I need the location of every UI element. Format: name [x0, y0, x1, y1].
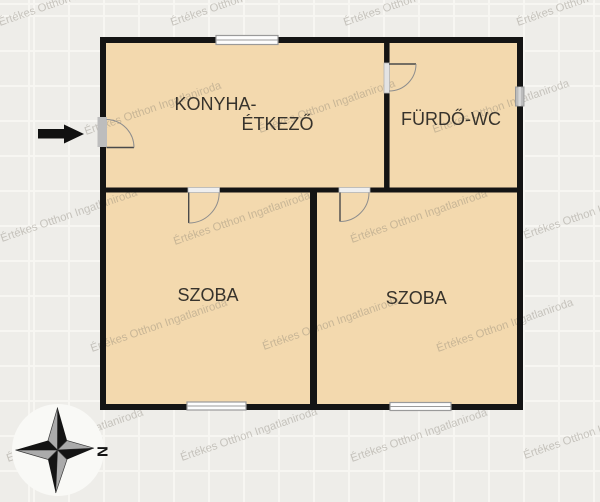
svg-text:Értékes Otthon Ingatlaniroda: Értékes Otthon Ingatlaniroda: [349, 405, 490, 464]
svg-text:SZOBA: SZOBA: [177, 285, 238, 305]
svg-text:Értékes Otthon Ingatlaniroda: Értékes Otthon Ingatlaniroda: [522, 402, 600, 461]
svg-text:Értékes Otthon Ingatlaniroda: Értékes Otthon Ingatlaniroda: [0, 0, 138, 29]
svg-text:KONYHA-: KONYHA-: [174, 94, 256, 114]
svg-text:N: N: [94, 446, 111, 457]
svg-text:Értékes Otthon Ingatlaniroda: Értékes Otthon Ingatlaniroda: [515, 0, 600, 29]
svg-text:SZOBA: SZOBA: [386, 288, 447, 308]
svg-text:Értékes Otthon Ingatlaniroda: Értékes Otthon Ingatlaniroda: [169, 0, 310, 29]
svg-text:FÜRDŐ-WC: FÜRDŐ-WC: [401, 108, 501, 129]
svg-text:Értékes Otthon Ingatlaniroda: Értékes Otthon Ingatlaniroda: [342, 0, 483, 29]
svg-text:Értékes Otthon Ingatlaniroda: Értékes Otthon Ingatlaniroda: [179, 404, 320, 463]
svg-text:Értékes Otthon Ingatlaniroda: Értékes Otthon Ingatlaniroda: [522, 182, 600, 241]
svg-text:ÉTKEZŐ: ÉTKEZŐ: [241, 113, 313, 134]
